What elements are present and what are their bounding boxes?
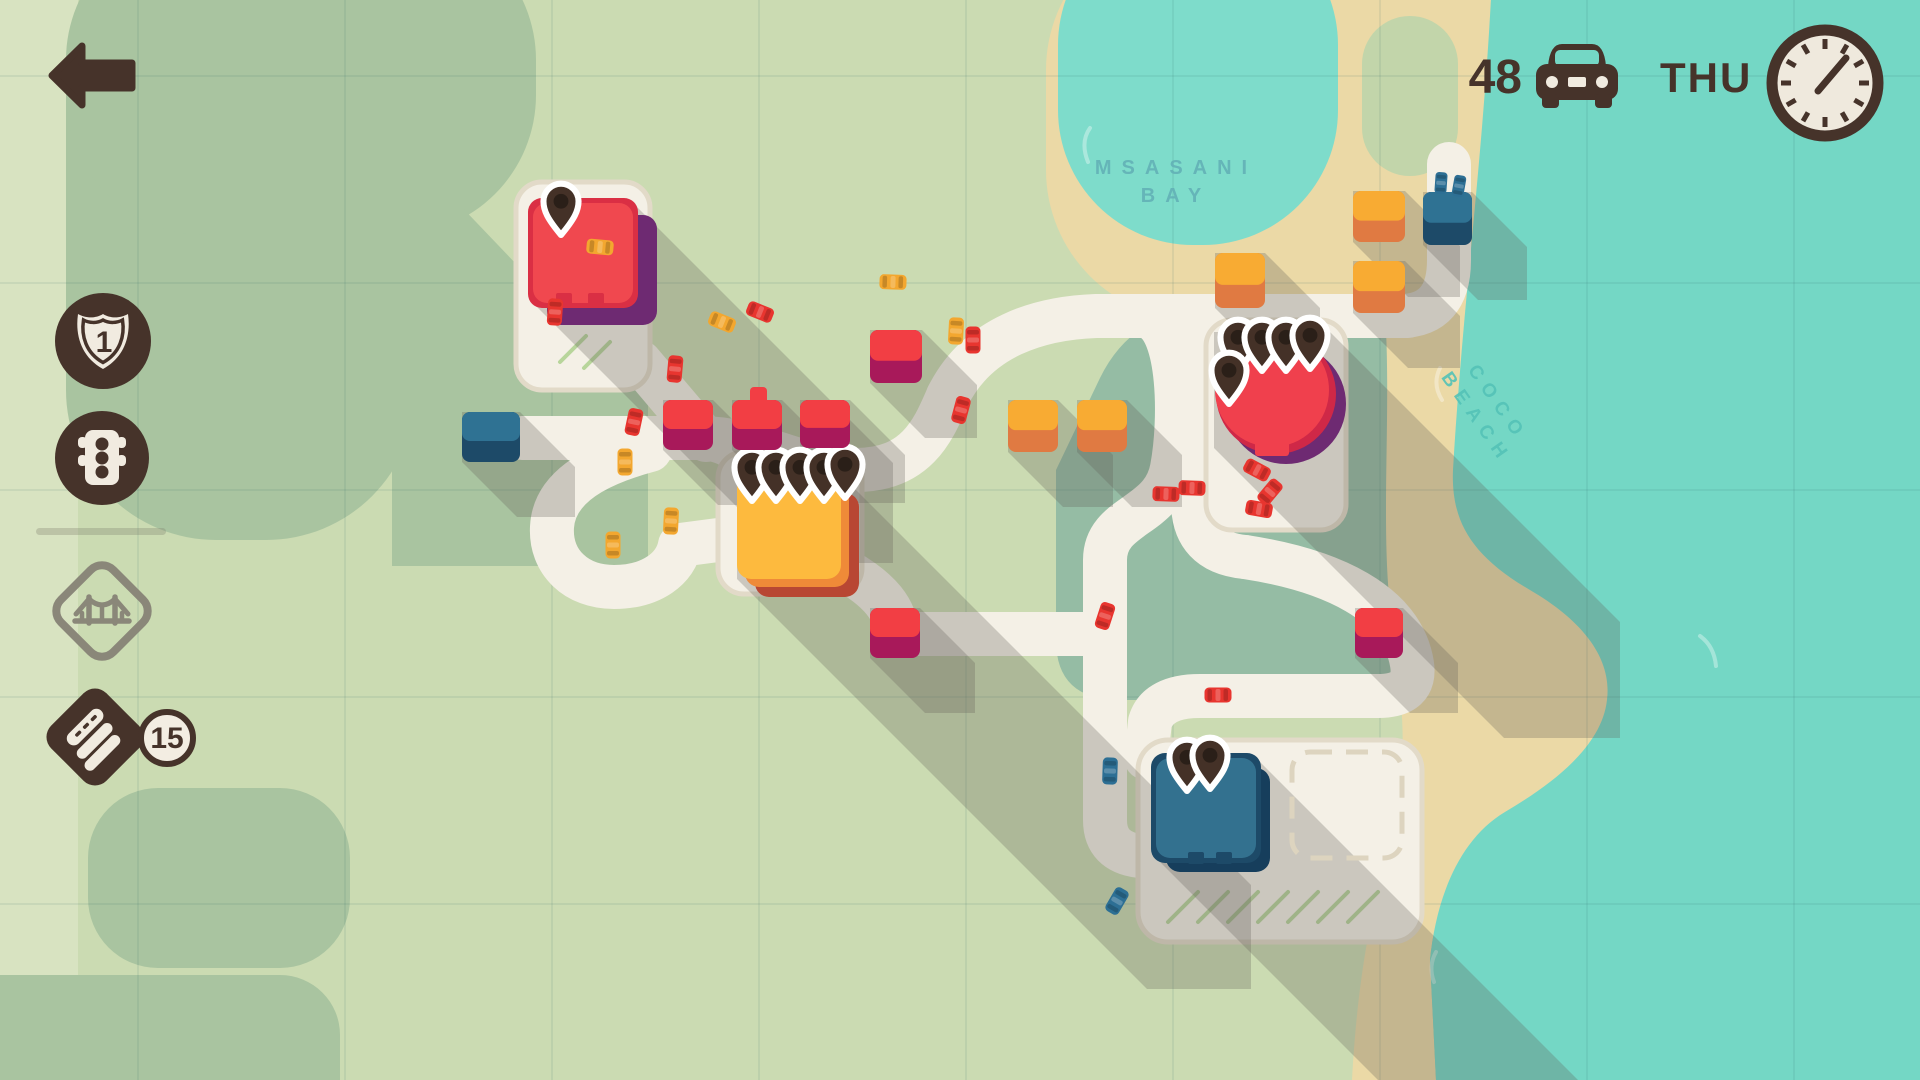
car [879, 274, 907, 290]
bridge-icon [44, 553, 160, 669]
car [666, 355, 683, 383]
motorway-upgrade-button[interactable]: 1 [55, 293, 151, 389]
bay-label: BAY [1141, 185, 1211, 207]
house [1215, 253, 1265, 308]
traffic-light-upgrade-button[interactable] [55, 411, 149, 505]
car [966, 327, 981, 354]
motorway-shield-icon: 1 [55, 293, 151, 389]
sidebar-divider [36, 528, 166, 535]
car [663, 507, 679, 535]
car [606, 532, 621, 559]
back-button[interactable] [46, 38, 142, 118]
road-tile-count-badge: 15 [138, 709, 196, 767]
game-screen: MSASANIBAYCOCOBEACH 48 THU 1 [0, 0, 1920, 1080]
motorway-count: 1 [96, 326, 113, 359]
house [1353, 261, 1405, 313]
day-label: THU [1660, 54, 1752, 102]
car [547, 298, 564, 326]
car [948, 317, 964, 345]
house [800, 400, 850, 448]
house [462, 412, 520, 462]
terrain-shape [88, 788, 350, 968]
house [870, 330, 922, 383]
house [663, 400, 713, 450]
car [1102, 757, 1118, 785]
house [1353, 191, 1405, 242]
house [1077, 400, 1127, 452]
terrain-shape [0, 975, 340, 1080]
car [1152, 486, 1180, 502]
bay-label: MSASANI [1095, 157, 1257, 179]
house [1423, 192, 1472, 245]
house [1355, 608, 1403, 658]
car [586, 238, 614, 255]
house [870, 608, 920, 658]
car [1205, 688, 1232, 703]
car [1178, 480, 1206, 496]
back-arrow-icon [46, 38, 142, 118]
bridge-upgrade-button[interactable] [44, 553, 160, 669]
clock-icon [1764, 22, 1886, 144]
car-icon [1534, 40, 1620, 116]
car [618, 449, 633, 476]
house [1008, 400, 1058, 452]
trip-counter: 48 [1452, 50, 1522, 105]
car [1434, 172, 1447, 194]
city-map: MSASANIBAYCOCOBEACH [0, 0, 1920, 1080]
traffic-light-icon [55, 411, 149, 505]
